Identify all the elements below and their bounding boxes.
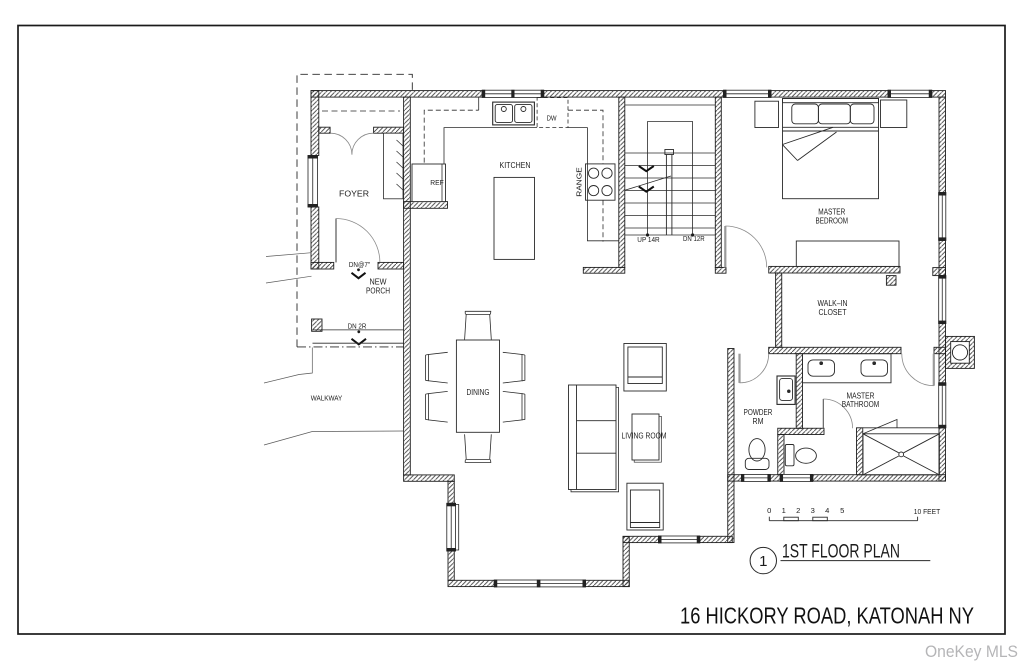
svg-text:DINING: DINING (467, 387, 490, 397)
svg-text:DN@7": DN@7" (349, 262, 371, 269)
svg-text:DW: DW (547, 116, 557, 123)
svg-text:LIVING ROOM: LIVING ROOM (622, 431, 667, 441)
svg-text:1: 1 (759, 553, 767, 570)
svg-text:WALKWAY: WALKWAY (311, 393, 343, 402)
svg-text:OneKey MLS: OneKey MLS (925, 643, 1018, 661)
svg-text:BATHROOM: BATHROOM (842, 399, 880, 409)
svg-text:UP 14R: UP 14R (637, 237, 659, 244)
svg-text:0: 0 (767, 506, 771, 515)
svg-text:CLOSET: CLOSET (819, 307, 848, 317)
svg-text:PORCH: PORCH (366, 286, 390, 296)
svg-text:RANGE: RANGE (577, 167, 584, 197)
svg-text:1ST FLOOR PLAN: 1ST FLOOR PLAN (782, 542, 900, 563)
svg-text:KITCHEN: KITCHEN (500, 160, 531, 170)
svg-text:10 FEET: 10 FEET (914, 507, 941, 516)
svg-text:RM: RM (753, 416, 764, 426)
svg-text:DN 2R: DN 2R (348, 324, 367, 331)
svg-text:16 HICKORY ROAD, KATONAH NY: 16 HICKORY ROAD, KATONAH NY (680, 603, 974, 629)
svg-text:4: 4 (825, 506, 829, 515)
svg-text:REF: REF (430, 180, 444, 187)
svg-text:5: 5 (840, 506, 844, 515)
svg-text:2: 2 (796, 506, 800, 515)
svg-text:BEDROOM: BEDROOM (816, 216, 849, 226)
svg-text:1: 1 (782, 506, 786, 515)
svg-text:DN 12R: DN 12R (683, 236, 705, 243)
svg-text:3: 3 (811, 506, 815, 515)
svg-text:FOYER: FOYER (339, 189, 369, 199)
